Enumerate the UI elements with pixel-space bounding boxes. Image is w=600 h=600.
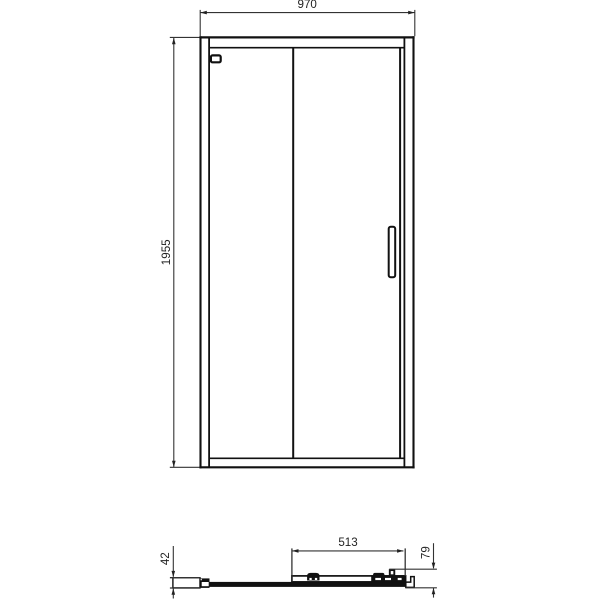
svg-text:1955: 1955 [160,239,173,265]
svg-text:79: 79 [419,546,432,559]
svg-text:970: 970 [298,0,317,11]
svg-text:42: 42 [159,552,172,565]
svg-text:513: 513 [338,536,357,549]
